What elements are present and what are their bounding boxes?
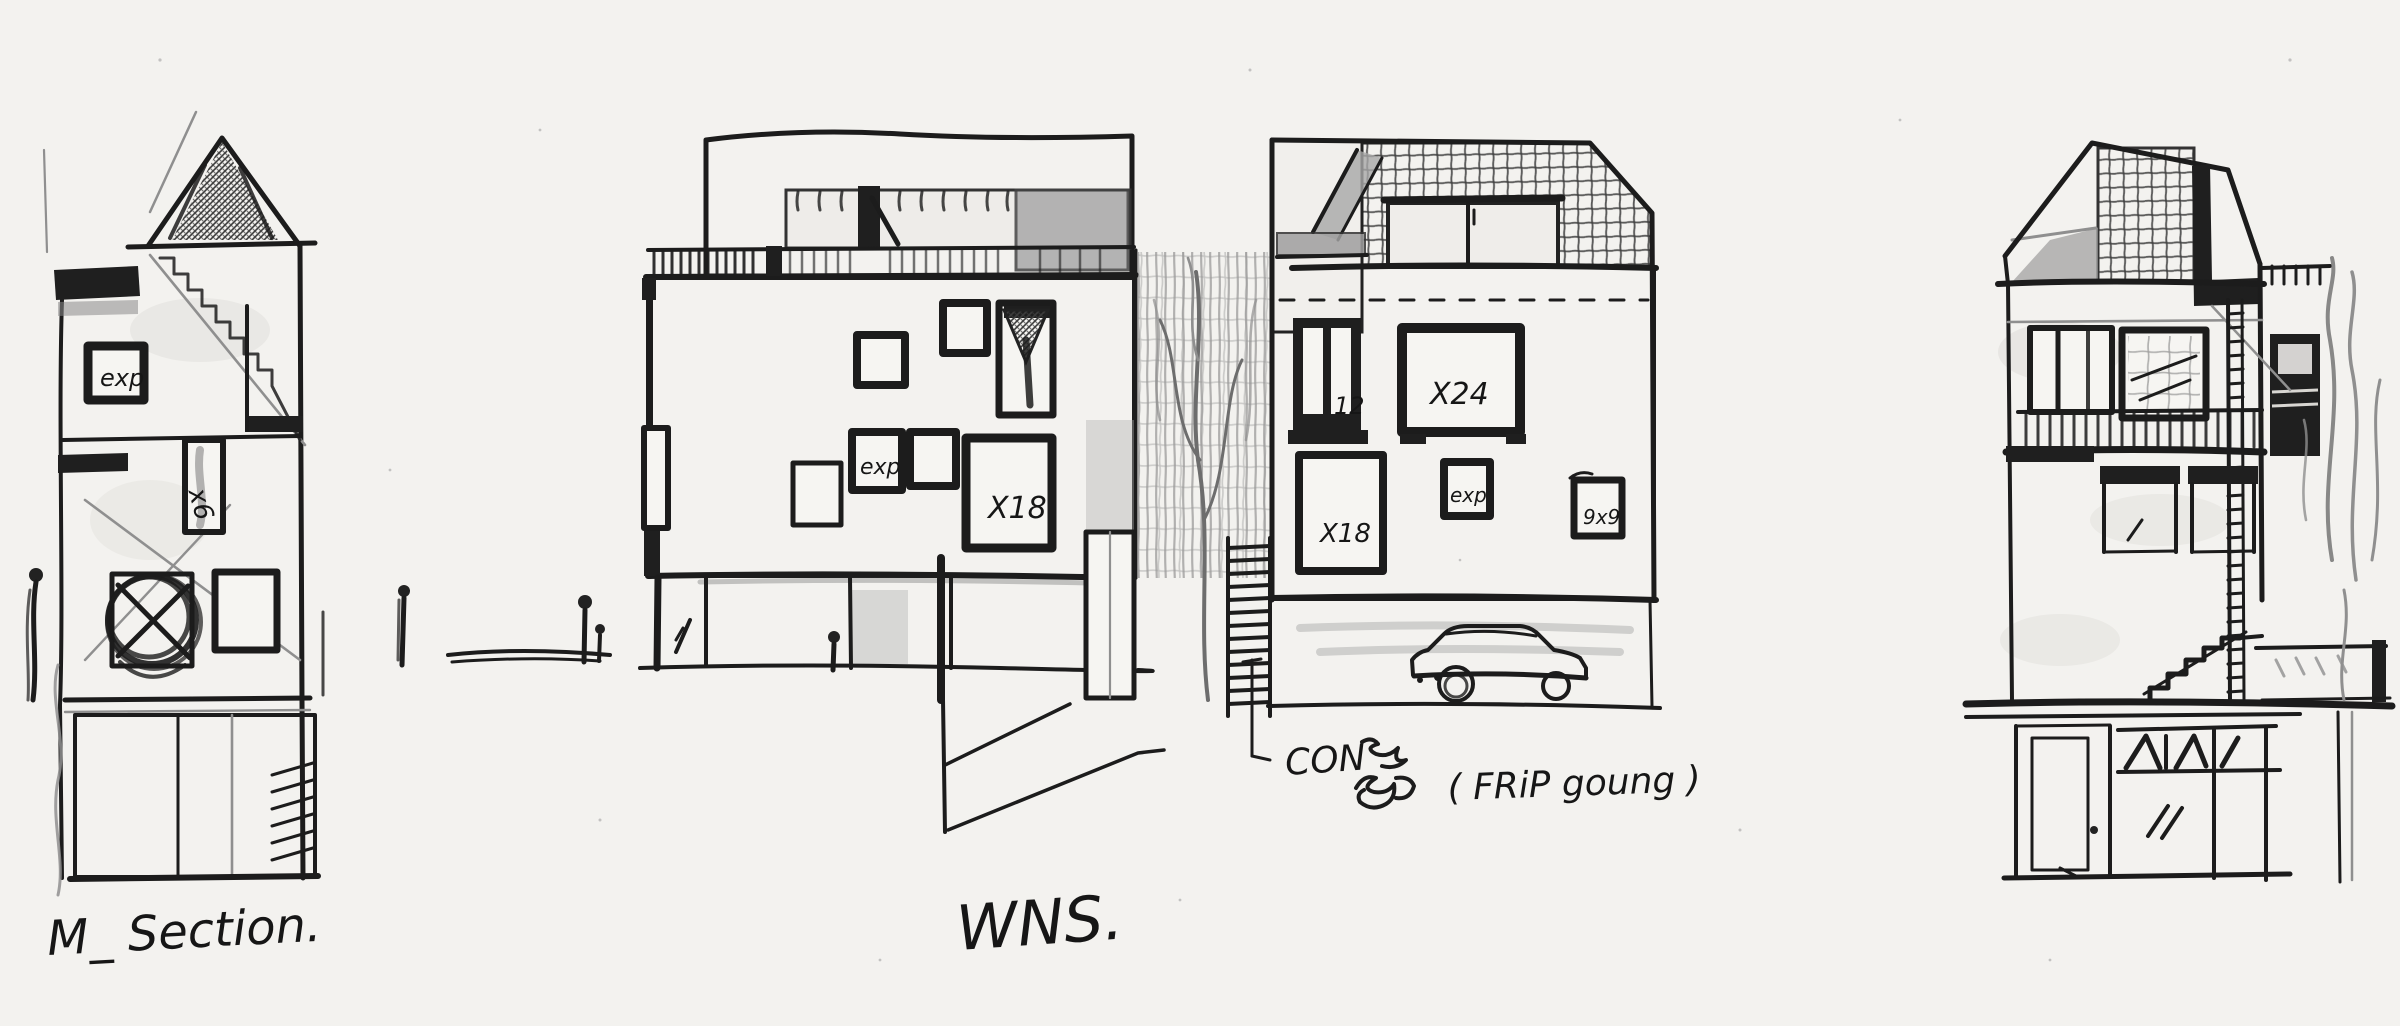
mid-window (215, 572, 277, 650)
sketch-page: x6 exp (0, 0, 2400, 1026)
left-window-label: exp (100, 364, 144, 392)
dark-balcony-door (2270, 334, 2320, 456)
clerestory-band (1384, 198, 1562, 267)
roof-grid-volume (2098, 148, 2194, 282)
eaves-line (1292, 266, 1656, 269)
center-title: WNS. (954, 881, 1125, 965)
mid-cornice-slab (58, 453, 128, 473)
architectural-sketch: x6 exp (0, 0, 2400, 1026)
ground-floor-line (65, 698, 310, 700)
base-line (70, 876, 318, 879)
middle-window-center (2122, 330, 2206, 418)
side-slot-window (644, 428, 668, 528)
exp-right-label: exp (1450, 483, 1487, 507)
left-cornice-slab (54, 266, 140, 300)
dark-double-window: 12 (1288, 318, 1368, 444)
x18-window: X18 (966, 438, 1052, 548)
middle-window-left (2030, 328, 2112, 412)
x18-right-label: X18 (1318, 519, 1371, 549)
x24-window: X24 (1400, 328, 1526, 444)
dark-window-label: 12 (1334, 392, 1365, 420)
tiny-window: 9x9 (1570, 473, 1622, 536)
window (857, 335, 905, 385)
window (943, 303, 987, 353)
window (793, 463, 841, 525)
exp-window-label: exp (860, 455, 901, 480)
exp-window: exp (852, 432, 902, 490)
eaves-line (1998, 282, 2264, 285)
x18-window-right: X18 (1299, 455, 1383, 571)
ground-line (1966, 702, 2392, 706)
funnel-window (999, 303, 1053, 415)
right-wall (2260, 264, 2262, 600)
tiny-window-label: 9x9 (1583, 505, 1620, 529)
annotation-prefix: CON (1284, 737, 1367, 784)
upper-rail (2262, 266, 2330, 284)
window (910, 432, 956, 486)
x18-window-label: X18 (986, 491, 1047, 526)
left-wall (60, 300, 62, 878)
exp-window-right: exp (1444, 462, 1490, 516)
rooftop-shaded-panel (1016, 190, 1128, 270)
floor-slab (245, 416, 303, 432)
x24-window-label: X24 (1428, 377, 1489, 412)
